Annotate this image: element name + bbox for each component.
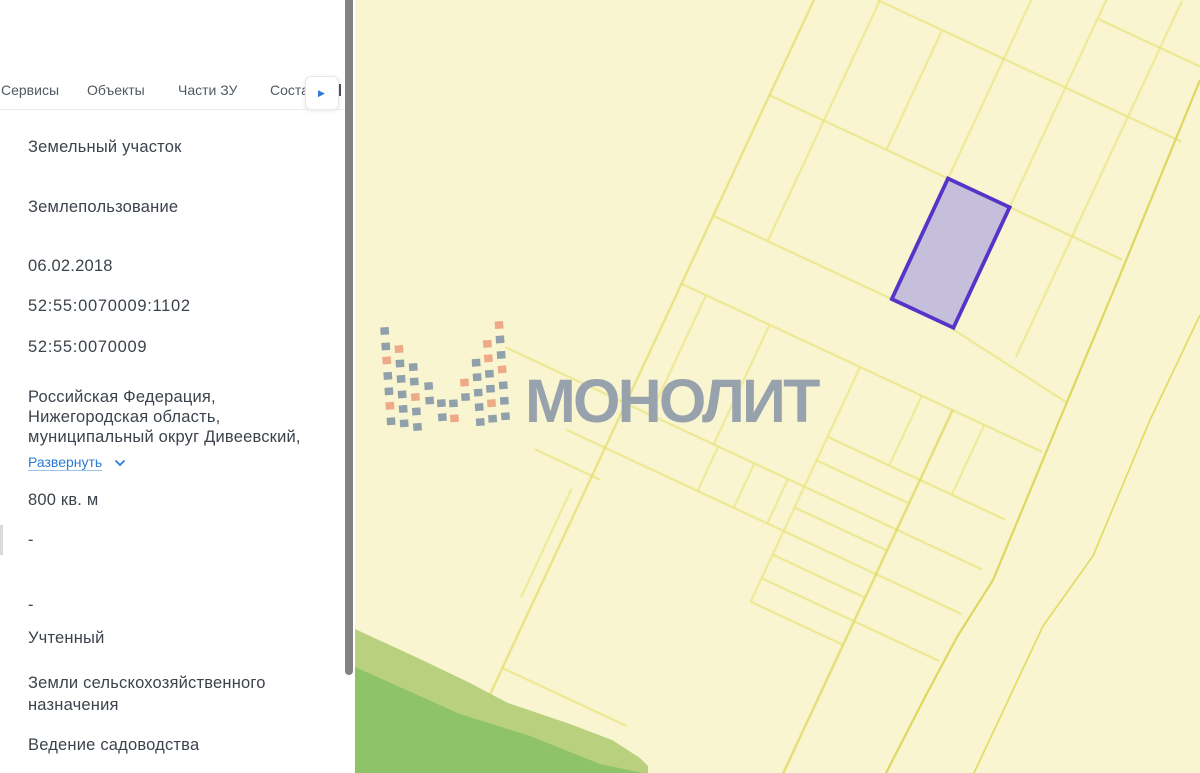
svg-text:МОНОЛИТ: МОНОЛИТ <box>525 367 820 435</box>
